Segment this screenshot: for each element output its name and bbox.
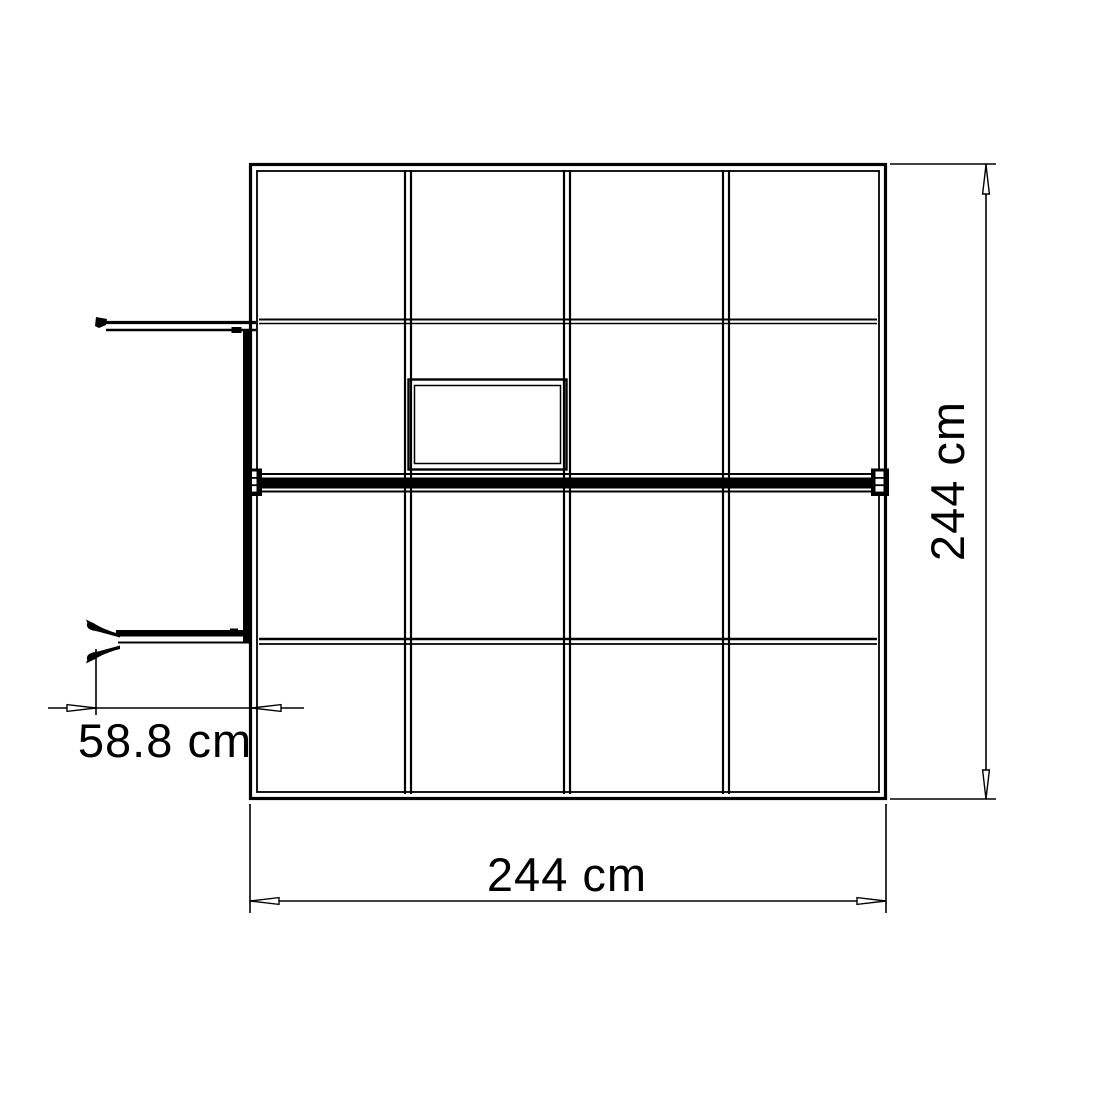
open-door-panel [86, 620, 252, 664]
door-panel-dot [230, 629, 238, 634]
overall-width-label: 244 cm [487, 848, 647, 901]
greenhouse-plan-svg: 58.8 cm 244 cm 244 cm [0, 0, 1096, 1096]
vent-end-cap [95, 317, 107, 328]
roof-purlin [259, 320, 877, 324]
vent-foot [232, 327, 242, 333]
ridge-connector-right [871, 469, 889, 497]
dimension-door-opening [48, 649, 304, 715]
door-opening-label: 58.8 cm [78, 714, 252, 767]
arrowhead-up-icon [983, 165, 990, 194]
door-sill-line [259, 639, 877, 644]
roof-vent-window [409, 380, 567, 470]
open-side-vent [95, 317, 256, 333]
overall-depth-label: 244 cm [921, 401, 974, 561]
arrowhead-right-icon [67, 705, 96, 712]
ridge-bar [259, 474, 877, 492]
arrowhead-right-icon [857, 898, 886, 905]
drawing-canvas: 58.8 cm 244 cm 244 cm [0, 0, 1096, 1096]
arrowhead-down-icon [983, 770, 990, 799]
arrowhead-left-icon [250, 898, 279, 905]
door-track-bar [243, 331, 252, 643]
